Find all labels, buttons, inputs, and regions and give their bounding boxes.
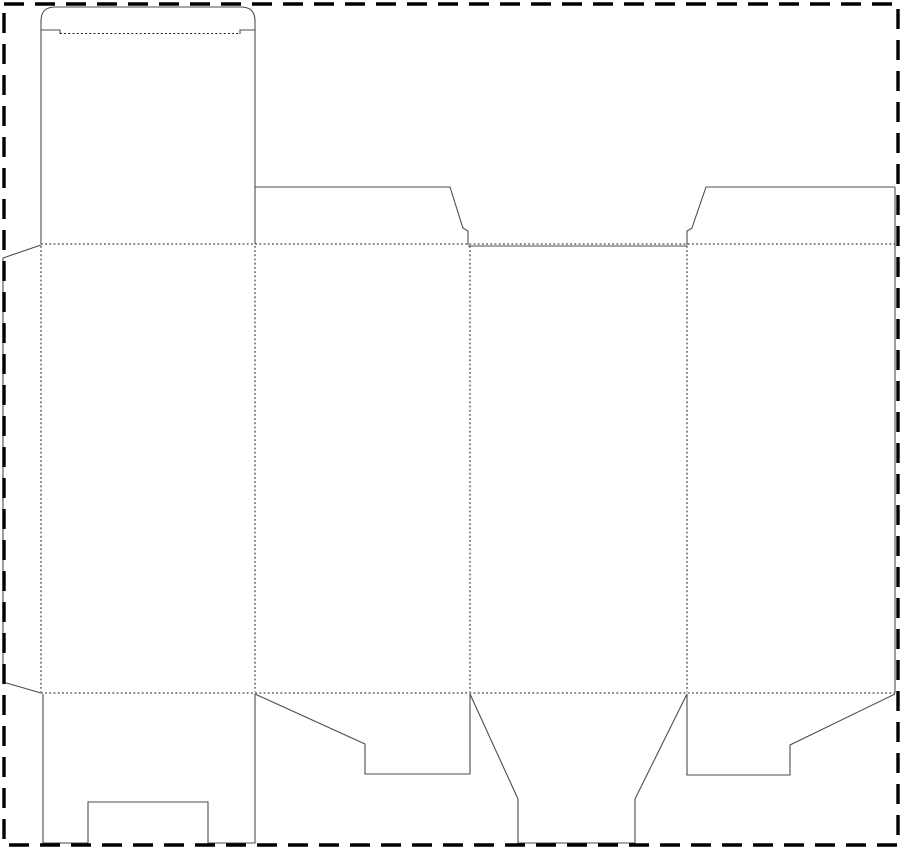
tuck-flap-right-shoulder-cut bbox=[240, 30, 255, 34]
bottom-lid-panel1-outline bbox=[43, 694, 255, 843]
dieline-drawing bbox=[0, 0, 900, 847]
glue-flap-outline bbox=[3, 245, 41, 693]
bottom-dust-flap-panel4-outline bbox=[687, 694, 895, 775]
bottom-tuck-flap-panel3-outline bbox=[470, 694, 687, 843]
tuck-flap-left-shoulder-cut bbox=[41, 30, 60, 34]
dieline-sheet bbox=[0, 0, 900, 847]
top-dust-flap-panel4-outline bbox=[687, 187, 895, 245]
sheet-dashed-border bbox=[4, 4, 898, 845]
lid-and-tuck-flap-outline bbox=[41, 7, 255, 244]
top-dust-flap-panel2-outline bbox=[255, 187, 468, 245]
bottom-dust-flap-panel2-outline bbox=[255, 694, 470, 774]
